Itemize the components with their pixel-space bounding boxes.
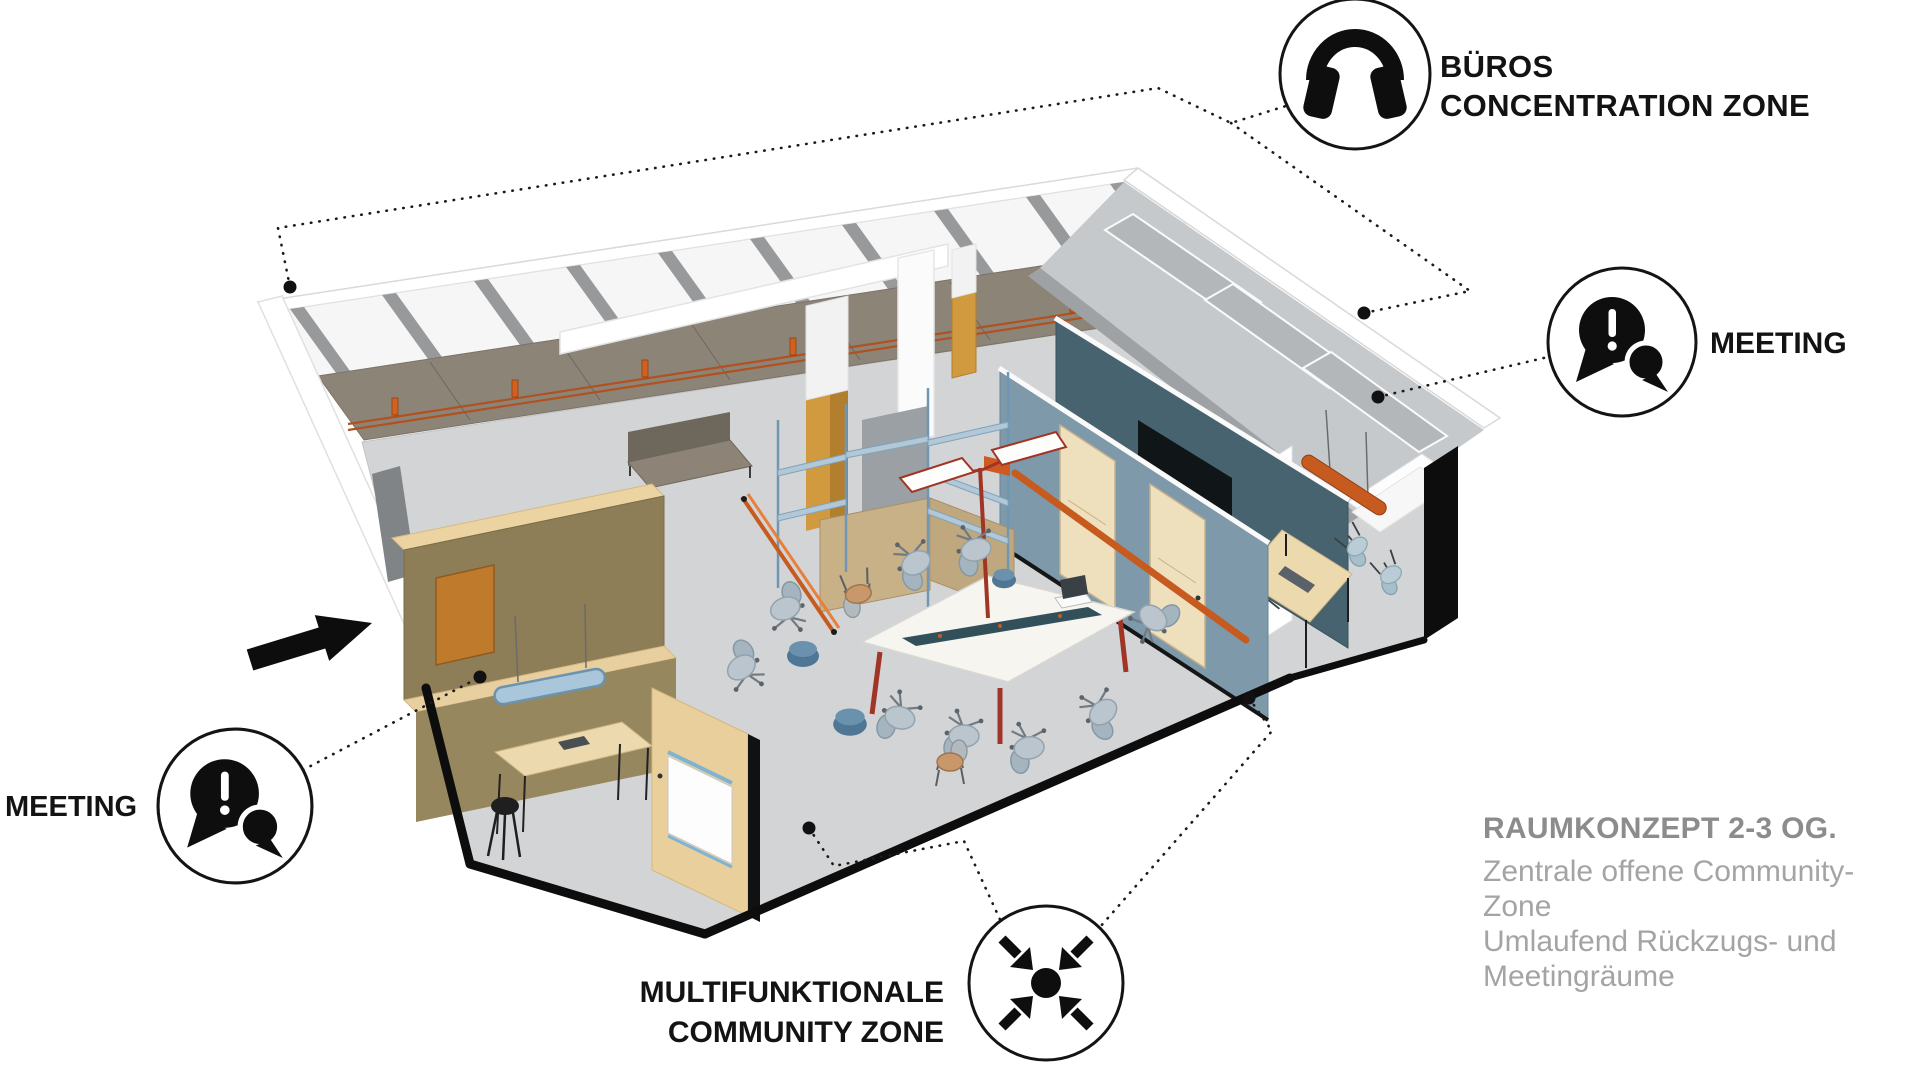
community-zone-label: MULTIFUNKTIONALE COMMUNITY ZONE: [450, 973, 944, 1053]
buros-label-line1: BÜROS: [1440, 47, 1810, 86]
caption-title: RAUMKONZEPT 2-3 OG.: [1483, 812, 1920, 846]
headphones-icon: [1280, 0, 1430, 149]
converging-arrows-icon: [969, 906, 1123, 1060]
meeting-left-label: MEETING: [5, 791, 137, 824]
entrance-arrow-icon: [247, 615, 372, 670]
raumkonzept-diagram-page: { "labels": { "buros": { "line1": "BÜROS…: [0, 0, 1920, 1065]
caption-line1: Zentrale offene Community-Zone: [1483, 854, 1920, 924]
meeting-right-label: MEETING: [1710, 327, 1847, 361]
buros-label-line2: CONCENTRATION ZONE: [1440, 86, 1810, 125]
community-label-line2: COMMUNITY ZONE: [450, 1013, 944, 1053]
community-label-line1: MULTIFUNKTIONALE: [450, 973, 944, 1013]
buros-concentration-zone-label: BÜROS CONCENTRATION ZONE: [1440, 47, 1810, 125]
caption-line2: Umlaufend Rückzugs- und: [1483, 924, 1920, 959]
orange-door: [436, 565, 494, 665]
black-cut-wall-right: [1424, 446, 1458, 640]
speech-bubbles-icon: [1548, 268, 1696, 416]
concept-caption: RAUMKONZEPT 2-3 OG. Zentrale offene Comm…: [1483, 812, 1920, 994]
caption-line3: Meetingräume: [1483, 959, 1920, 994]
speech-bubbles-icon: [158, 729, 312, 883]
